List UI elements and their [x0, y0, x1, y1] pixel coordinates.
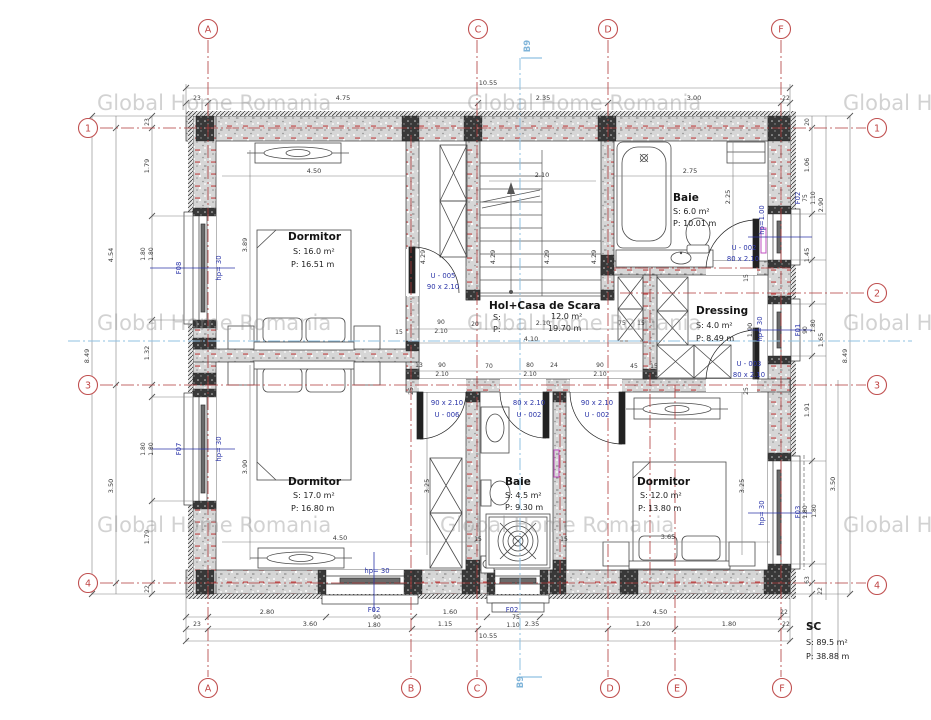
watermark-text: Global Home Romania — [97, 311, 331, 335]
dim-label: 1.80 — [367, 622, 381, 629]
dim-label: 1.80 — [811, 504, 818, 518]
dim-label: 90 — [437, 319, 445, 326]
dim-label: 70 — [485, 363, 493, 370]
dim-label: 4.29 — [590, 250, 598, 264]
dim-label: 75 — [802, 194, 809, 202]
dim-label: 15 — [743, 274, 750, 282]
dim-label: 10.55 — [479, 632, 498, 640]
floor-plan-page: A C D F A B C D E F 1 3 4 1 2 3 4 B9 B9 … — [0, 0, 931, 720]
door-code: U - 002 — [585, 411, 610, 419]
dim-label: 1.15 — [438, 620, 452, 628]
bubble-1-right: 1 — [868, 119, 887, 138]
room-perimeter: P: 10.01 m — [673, 219, 717, 228]
watermark-text: Global Home Romania — [467, 91, 701, 115]
dim-label: 4.50 — [333, 534, 347, 542]
dim-label: 1.45 — [803, 248, 811, 262]
window-code: F03 — [794, 506, 802, 519]
room-name-dormitor-bl: Dormitor — [288, 476, 342, 488]
dim-label: 1.32 — [143, 346, 151, 360]
dim-label: 4.29 — [543, 250, 551, 264]
dim-label: 1.10 — [810, 191, 817, 205]
wall-mid-left — [193, 349, 419, 362]
dim-label: 90 — [438, 362, 446, 369]
dim-label: 3.25 — [738, 479, 746, 493]
window-code: F01 — [794, 324, 802, 337]
bathtub — [617, 142, 671, 248]
room-perimeter: P: 9.30 m — [505, 503, 543, 512]
door-code: U - 003 — [737, 360, 762, 368]
dim-label: 4.75 — [336, 94, 350, 102]
section-label-bottom: B9 — [516, 676, 526, 688]
watermark-text: Global Home Romania — [440, 513, 674, 537]
dim-label: 4.29 — [489, 250, 497, 264]
dim-label: 3.89 — [241, 238, 249, 252]
bubble-label: E — [674, 684, 680, 695]
door-code: U - 002 — [517, 411, 542, 419]
dim-label: 4.54 — [107, 248, 115, 262]
room-area: S: 6.0 m² — [673, 207, 710, 216]
door-size: 90 x 2.10 — [431, 399, 463, 407]
vanity-sink — [481, 407, 509, 453]
dim-label: 1.91 — [803, 403, 811, 417]
wall-top — [186, 116, 790, 141]
bubble-D-top: D — [599, 20, 618, 39]
bubble-C-top: C — [469, 20, 488, 39]
bubble-label: 4 — [874, 581, 880, 592]
watermark-text: Global Home Romania — [97, 513, 331, 537]
bubble-label: 2 — [874, 289, 880, 300]
dim-label: 25 — [743, 387, 750, 395]
bubble-label: 1 — [85, 124, 91, 135]
room-area: S: 4.0 m² — [696, 321, 733, 330]
dim-label: 1.65 — [817, 333, 825, 347]
room-perimeter: P: 16.51 m — [291, 260, 335, 269]
dim-label: 2.10 — [593, 371, 607, 378]
dim-label: 2.90 — [817, 198, 825, 212]
dim-label: 1.79 — [143, 159, 151, 173]
room-area: S: 16.0 m² — [293, 247, 335, 256]
watermark-text: Global Home Romania — [97, 91, 331, 115]
bubble-label: 1 — [874, 124, 880, 135]
dim-label: 2.80 — [260, 608, 274, 616]
dim-label: 1.80 — [140, 247, 147, 261]
window-hp: hp= 30 — [364, 567, 389, 575]
bubble-4-right: 4 — [868, 576, 887, 595]
dim-label: 24 — [550, 362, 558, 369]
dim-label: 90 — [802, 326, 809, 334]
dim-label: 15 — [560, 536, 568, 543]
window-code: F07 — [175, 443, 183, 456]
bubble-F-top: F — [772, 20, 791, 39]
dim-label: 15 — [395, 329, 403, 336]
bubble-label: 4 — [85, 579, 91, 590]
bubble-3-left: 3 — [79, 376, 98, 395]
section-label-top: B9 — [523, 40, 533, 52]
dim-label: 8.49 — [841, 349, 849, 363]
dim-label: 8.49 — [83, 349, 91, 363]
dim-label: 1.80 — [810, 319, 817, 333]
door-code: U - 006 — [435, 411, 460, 419]
room-perimeter: P: 13.80 m — [638, 504, 682, 513]
dim-label: 3.60 — [303, 620, 317, 628]
bubble-D-bottom: D — [601, 679, 620, 698]
window-code: F02 — [368, 606, 381, 614]
dim-label: 23 — [193, 621, 201, 628]
dim-label: 4.50 — [307, 167, 321, 175]
window-hp: hp=1.00 — [758, 205, 766, 234]
bubble-A-top: A — [199, 20, 218, 39]
door-size: 80 x 2.10 — [727, 255, 759, 263]
watermark-text: Global Home Romania — [843, 513, 931, 537]
bubble-B-bottom: B — [402, 679, 421, 698]
dim-label: 3.50 — [829, 477, 837, 491]
dim-label: 15 — [650, 363, 658, 370]
room-name-baie-jos: Baie — [505, 476, 531, 488]
dim-label: 2.25 — [724, 190, 732, 204]
dim-label: 1.06 — [803, 158, 811, 172]
window-code: F08 — [175, 262, 183, 275]
dim-label: 22 — [817, 587, 824, 595]
room-name-dormitor-br: Dormitor — [637, 476, 691, 488]
room-area: S: 12.0 m² — [640, 491, 682, 500]
window-hp: hp= 30 — [215, 255, 223, 280]
dim-label: 13 — [415, 362, 423, 369]
bubble-F-bottom: F — [773, 679, 792, 698]
bubble-label: D — [604, 25, 611, 36]
bubble-label: C — [474, 684, 481, 695]
dim-label: 2.10 — [435, 371, 449, 378]
dim-label: 45 — [630, 363, 638, 370]
bubble-label: A — [205, 684, 212, 695]
dim-label: 23 — [144, 118, 151, 126]
bubble-label: F — [779, 684, 784, 695]
window-code: F02 — [794, 192, 802, 205]
dim-label: 80 — [526, 362, 534, 369]
watermark-text: Global Home Romania — [843, 91, 931, 115]
dim-label: 3.50 — [107, 479, 115, 493]
dim-label: 3.90 — [241, 460, 249, 474]
dim-label: 1.90 — [746, 323, 754, 337]
dim-label: 1.80 — [722, 620, 736, 628]
door-size: 90 x 2.10 — [427, 283, 459, 291]
bubble-C-bottom: C — [468, 679, 487, 698]
wall-stair-right — [601, 141, 614, 300]
dim-label: 90 — [596, 362, 604, 369]
bubble-label: 3 — [874, 381, 880, 392]
bubble-label: 3 — [85, 381, 91, 392]
dim-label: 75 — [512, 614, 520, 621]
bubble-label: D — [606, 684, 613, 695]
dim-label: 1.80 — [148, 247, 155, 261]
bubble-label: C — [475, 25, 482, 36]
dim-label: 4.10 — [524, 335, 538, 343]
dim-label: 10.55 — [479, 79, 498, 87]
bubble-4-left: 4 — [79, 574, 98, 593]
dim-label: 2.10 — [523, 371, 537, 378]
dim-label: 22 — [809, 623, 817, 630]
watermark-text: Global Home Romania — [467, 311, 701, 335]
room-name-dormitor-tl: Dormitor — [288, 231, 342, 243]
bubble-A-bottom: A — [199, 679, 218, 698]
dim-label: 25 — [408, 387, 415, 395]
dim-label: 20 — [804, 118, 811, 126]
door-code: U - 002 — [732, 244, 757, 252]
dim-label: 1.10 — [506, 622, 520, 629]
wall-bath-low-left — [466, 392, 480, 570]
wall-bath-low-right — [553, 392, 566, 570]
window-code: F02 — [506, 606, 519, 614]
bubble-2-right: 2 — [868, 284, 887, 303]
window-hp: hp= 30 — [758, 500, 766, 525]
door-size: 80 x 2.10 — [733, 371, 765, 379]
room-perimeter: P: 38.88 m — [806, 652, 850, 661]
watermark-text: Global Home Romania — [843, 311, 931, 335]
dim-label: 4.50 — [653, 608, 667, 616]
bubble-E-bottom: E — [668, 679, 687, 698]
room-perimeter: P: 16.80 m — [291, 504, 335, 513]
door-size: 80 x 2.10 — [513, 399, 545, 407]
dim-label: 90 — [373, 614, 381, 621]
dim-label: 2.10 — [535, 171, 549, 179]
dim-label: 63 — [804, 576, 811, 584]
bubble-1-left: 1 — [79, 119, 98, 138]
room-perimeter: P: 8.49 m — [696, 334, 734, 343]
dim-label: 1.80 — [140, 442, 147, 456]
room-area: S: 4.5 m² — [505, 491, 542, 500]
room-area: S: 17.0 m² — [293, 491, 335, 500]
window-hp: hp= 30 — [215, 436, 223, 461]
dim-label: 2.10 — [434, 328, 448, 335]
wall-stair-left — [466, 141, 480, 300]
dim-label: 2.35 — [525, 620, 539, 628]
dim-label: 1.60 — [443, 608, 457, 616]
dim-label: 1.80 — [148, 442, 155, 456]
room-name-dressing: Dressing — [696, 305, 748, 317]
dim-label: 22 — [782, 95, 790, 102]
bubble-label: B — [408, 684, 415, 695]
bubble-label: F — [778, 25, 783, 36]
dim-label: 1.80 — [802, 505, 809, 519]
dim-label: 22 — [144, 585, 151, 593]
dim-label: 22 — [782, 621, 790, 628]
door-code: U - 005 — [431, 272, 456, 280]
room-area: S: 89.5 m² — [806, 638, 848, 647]
dim-label: 3.25 — [423, 479, 431, 493]
dim-label: 2.75 — [683, 167, 697, 175]
door-size: 90 x 2.10 — [581, 399, 613, 407]
floor-plan-drawing: A C D F A B C D E F 1 3 4 1 2 3 4 B9 B9 … — [0, 0, 931, 720]
dim-label: 15 — [474, 536, 482, 543]
window-hp: hp= 30 — [756, 316, 764, 341]
bubble-label: A — [205, 25, 212, 36]
dim-label: 4.29 — [419, 250, 427, 264]
room-name-baie-sus: Baie — [673, 192, 699, 204]
dim-label: 22 — [780, 609, 788, 616]
bed-bottom-left — [228, 361, 380, 480]
dim-label: 1.20 — [636, 620, 650, 628]
bubble-3-right: 3 — [868, 376, 887, 395]
